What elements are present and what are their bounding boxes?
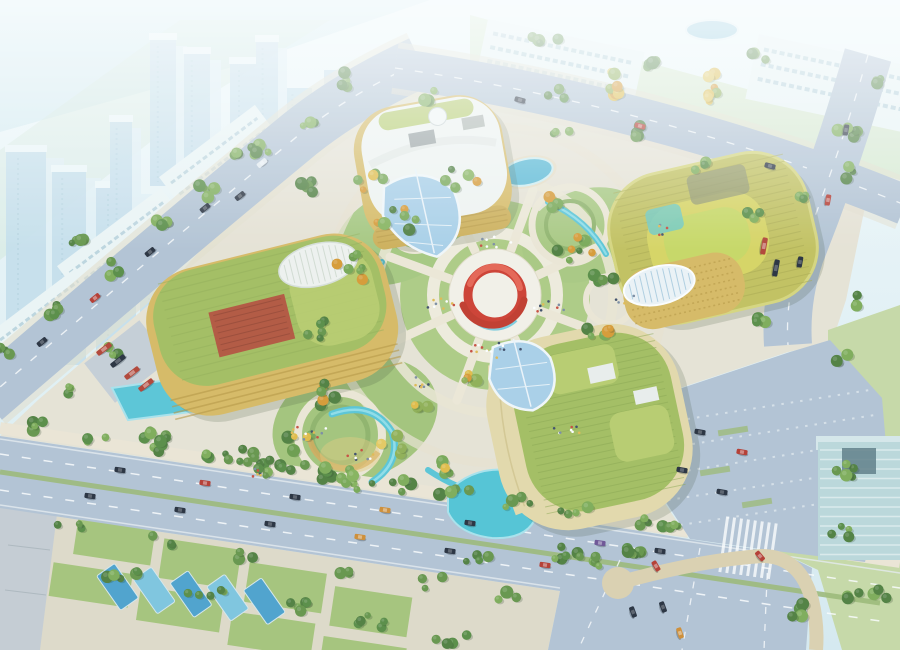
- scene-canvas: [0, 0, 900, 650]
- color-cast: [0, 0, 900, 650]
- aerial-render: [0, 0, 900, 650]
